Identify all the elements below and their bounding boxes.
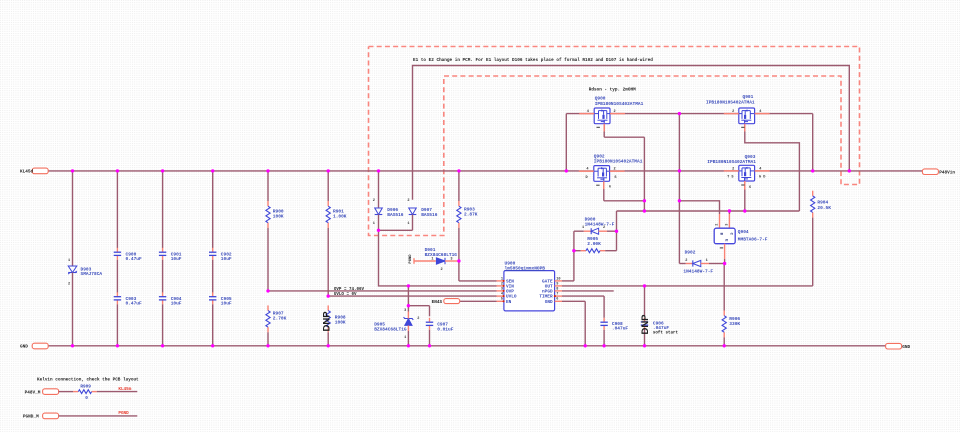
svg-text:BAS516: BAS516 <box>421 212 438 218</box>
svg-text:1: 1 <box>706 259 708 263</box>
svg-text:1: 1 <box>68 259 70 263</box>
svg-text:6: 6 <box>609 186 611 190</box>
svg-text:10: 10 <box>556 277 560 281</box>
svg-text:G D: G D <box>759 176 766 180</box>
svg-text:0: 0 <box>85 396 88 401</box>
svg-text:GND: GND <box>20 345 28 350</box>
svg-text:IPB180N10S402ATMA1: IPB180N10S402ATMA1 <box>707 159 756 165</box>
svg-text:2.70K: 2.70K <box>273 315 287 321</box>
svg-text:1N4148W-7-F: 1N4148W-7-F <box>683 269 713 275</box>
svg-text:2: 2 <box>732 167 734 171</box>
svg-text:SMAJ78CA: SMAJ78CA <box>81 271 103 277</box>
svg-text:PGND_M: PGND_M <box>23 415 39 420</box>
svg-text:20.5K: 20.5K <box>817 205 831 211</box>
svg-text:2.00K: 2.00K <box>587 241 601 247</box>
svg-text:Q902: Q902 <box>594 153 605 159</box>
svg-text:EN4S: EN4S <box>432 300 443 305</box>
svg-text:R904: R904 <box>817 200 828 206</box>
svg-text:2: 2 <box>614 110 616 114</box>
svg-text:2: 2 <box>501 282 503 286</box>
svg-text:IPB180N10S402ATMA1: IPB180N10S402ATMA1 <box>706 100 755 106</box>
svg-text:R906: R906 <box>729 316 740 322</box>
svg-text:8: 8 <box>556 287 558 291</box>
svg-text:100K: 100K <box>273 213 284 219</box>
svg-text:P48V_M: P48V_M <box>25 390 41 395</box>
svg-text:2: 2 <box>417 317 419 321</box>
svg-text:MMBTA06-7-F: MMBTA06-7-F <box>738 237 768 243</box>
svg-text:D902: D902 <box>685 250 696 256</box>
svg-text:Q901: Q901 <box>743 94 754 100</box>
svg-text:OVP = 74.06V: OVP = 74.06V <box>334 288 365 292</box>
svg-text:1: 1 <box>501 277 503 281</box>
svg-text:GND: GND <box>902 345 910 350</box>
svg-text:BZX84C68LT1G: BZX84C68LT1G <box>374 327 407 333</box>
svg-text:2: 2 <box>407 199 409 203</box>
svg-text:330K: 330K <box>729 321 740 327</box>
svg-text:2.87K: 2.87K <box>464 211 478 217</box>
svg-text:10uF: 10uF <box>171 256 182 262</box>
svg-text:KL45m: KL45m <box>118 387 131 392</box>
svg-text:R909: R909 <box>80 384 91 389</box>
svg-text:PGND: PGND <box>118 411 129 416</box>
svg-text:7: 7 <box>556 293 558 297</box>
svg-text:1: 1 <box>373 222 375 226</box>
svg-text:soft start: soft start <box>653 331 679 336</box>
svg-text:Rdson - typ. 2mOHM: Rdson - typ. 2mOHM <box>589 87 636 92</box>
svg-text:0.47uF: 0.47uF <box>126 256 143 262</box>
svg-text:5: 5 <box>501 298 503 302</box>
svg-text:2: 2 <box>373 199 375 203</box>
svg-text:3: 3 <box>404 309 406 313</box>
svg-text:6: 6 <box>556 298 558 302</box>
svg-text:Q900: Q900 <box>595 96 606 102</box>
svg-text:IPB180N10S402ATMA1: IPB180N10S402ATMA1 <box>595 101 644 107</box>
svg-text:10uF: 10uF <box>221 301 232 307</box>
svg-text:1: 1 <box>431 257 433 261</box>
svg-text:T S: T S <box>727 176 734 180</box>
svg-text:Q904: Q904 <box>738 229 749 235</box>
svg-text:GND: GND <box>545 300 553 305</box>
svg-text:EN: EN <box>506 300 512 305</box>
svg-text:1.00K: 1.00K <box>333 213 347 219</box>
svg-text:1: 1 <box>407 222 409 226</box>
svg-text:C907: C907 <box>437 322 448 328</box>
svg-text:PGND: PGND <box>409 254 413 264</box>
svg-text:DNP: DNP <box>640 314 651 335</box>
svg-text:P48Vin: P48Vin <box>939 170 955 175</box>
svg-text:E1 to E2 Change in PCM. For E1: E1 to E2 Change in PCM. For E1 layout D1… <box>413 58 653 63</box>
svg-text:100K: 100K <box>335 319 346 325</box>
svg-text:3: 3 <box>501 287 503 291</box>
svg-text:2: 2 <box>68 283 70 287</box>
svg-text:3: 3 <box>726 224 730 226</box>
svg-text:9: 9 <box>556 282 558 286</box>
svg-text:10uF: 10uF <box>221 256 232 262</box>
svg-text:2: 2 <box>732 110 734 114</box>
svg-text:1N4148W-7-F: 1N4148W-7-F <box>585 221 615 227</box>
svg-text:2: 2 <box>614 167 616 171</box>
svg-text:2: 2 <box>603 226 605 230</box>
svg-text:1: 1 <box>582 226 584 230</box>
svg-text:.047uF: .047uF <box>612 326 629 332</box>
svg-text:2: 2 <box>441 268 443 272</box>
svg-text:DNP: DNP <box>322 311 333 332</box>
svg-text:2: 2 <box>715 224 719 226</box>
svg-text:UVLO = 0V: UVLO = 0V <box>334 293 357 297</box>
svg-text:6: 6 <box>749 186 751 190</box>
svg-text:Kelvin connection, check the P: Kelvin connection, check the PCB layout <box>37 378 139 383</box>
svg-text:KL45d: KL45d <box>20 170 34 175</box>
svg-text:10uF: 10uF <box>171 301 182 307</box>
svg-text:3: 3 <box>450 257 452 261</box>
svg-text:Q903: Q903 <box>745 154 756 160</box>
svg-text:2: 2 <box>685 259 687 263</box>
svg-text:.047uF: .047uF <box>653 325 670 331</box>
svg-text:0.01uF: 0.01uF <box>437 327 454 333</box>
svg-text:1: 1 <box>404 336 406 340</box>
svg-text:0.47uF: 0.47uF <box>126 301 143 307</box>
svg-text:IPB180N10S402ATMA1: IPB180N10S402ATMA1 <box>594 159 643 165</box>
svg-text:BAS516: BAS516 <box>387 212 404 218</box>
